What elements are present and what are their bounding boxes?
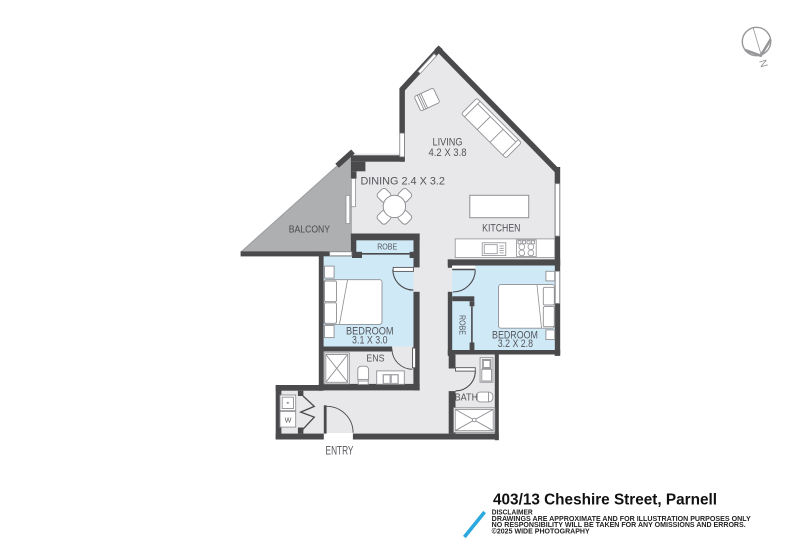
svg-text:403/13 Cheshire Street, Parnel: 403/13 Cheshire Street, Parnell: [493, 492, 717, 509]
svg-text:3.1 X 3.0: 3.1 X 3.0: [352, 334, 388, 346]
svg-text:W: W: [285, 417, 292, 424]
svg-text:BATH: BATH: [455, 392, 479, 404]
svg-text:KITCHEN: KITCHEN: [482, 223, 520, 235]
svg-text:ROBE: ROBE: [377, 242, 397, 251]
svg-text:ENTRY: ENTRY: [326, 445, 354, 457]
svg-text:4.2 X 3.8: 4.2 X 3.8: [429, 147, 467, 159]
svg-text:©2025 WIDE PHOTOGRAPHY: ©2025 WIDE PHOTOGRAPHY: [492, 528, 590, 536]
svg-text:ENS: ENS: [366, 352, 384, 364]
svg-text:N: N: [756, 58, 770, 69]
svg-text:3.2 X 2.8: 3.2 X 2.8: [498, 338, 533, 350]
svg-text:BALCONY: BALCONY: [289, 224, 330, 235]
svg-text:ROBE: ROBE: [458, 315, 467, 335]
svg-text:DINING 2.4 X 3.2: DINING 2.4 X 3.2: [360, 175, 445, 187]
